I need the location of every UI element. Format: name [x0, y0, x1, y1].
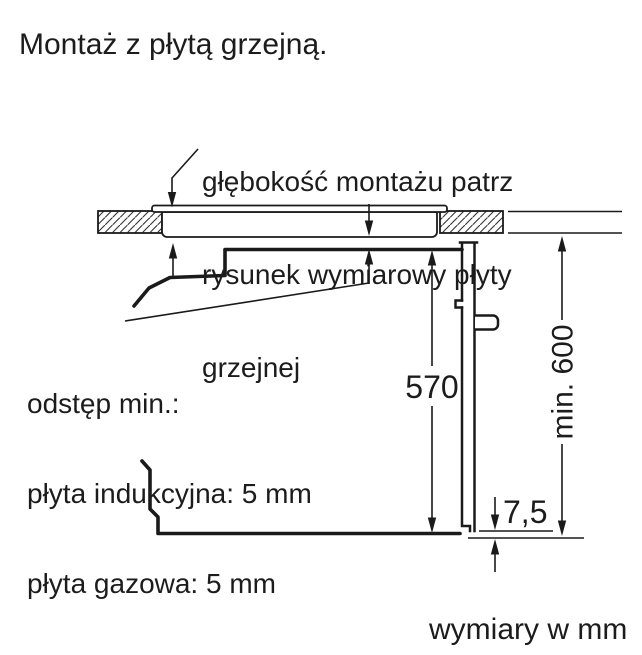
depth-annotation-line2: rysunek wymiarowy płyty: [202, 259, 513, 290]
depth-note-leader: [168, 149, 198, 208]
clearance-note: odstęp min.: płyta indukcyjna: 5 mm płyt…: [27, 329, 321, 655]
arrow-up-icon: [169, 243, 177, 259]
clearance-induction: płyta indukcyjna: 5 mm: [27, 479, 321, 509]
arrow-down-icon: [491, 515, 499, 531]
page-title: Montaż z płytą grzejną.: [19, 28, 327, 61]
arrow-down-icon: [428, 518, 436, 534]
worktop-left: [98, 211, 162, 233]
clearance-heading: odstęp min.:: [27, 389, 321, 419]
worktop-extension-lines: [508, 212, 622, 234]
dimension-label-oven-height: 570: [403, 370, 461, 405]
depth-annotation-line1: głębokość montażu patrz: [202, 166, 513, 197]
dimension-label-bottom-gap: 7,5: [503, 495, 547, 530]
dimension-label-niche-height: min. 600: [547, 324, 580, 439]
arrow-down-icon: [558, 521, 566, 537]
clearance-gas: płyta gazowa: 5 mm: [27, 569, 321, 599]
units-note: wymiary w mm: [429, 613, 627, 646]
manual-page: Montaż z płytą grzejną. głębokość montaż…: [0, 0, 642, 655]
arrow-up-icon: [558, 236, 566, 252]
arrow-up-icon: [491, 539, 499, 555]
